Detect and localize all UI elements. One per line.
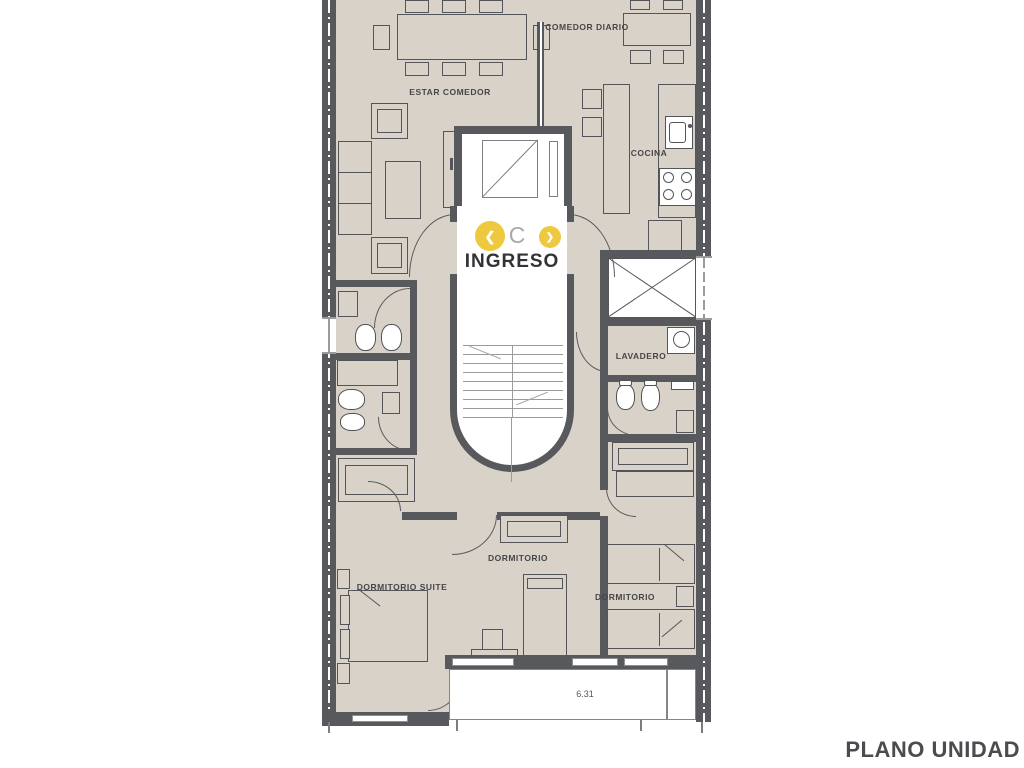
interior-wall-gap [540,22,542,128]
tv-cabinet-handle [450,158,453,170]
bidet [616,384,635,410]
shaft-break-edge [696,318,712,320]
bath-wall-right [410,280,417,455]
bath-counter [337,360,398,386]
coffee-table [385,161,421,219]
breakfast-chair [630,0,650,10]
bed-pillow-line [659,548,660,581]
bed-pillow-line [659,613,660,646]
axis-tick [701,722,703,733]
bidet-tank [619,380,632,386]
toilet-tank [644,380,657,386]
armchair-seat [377,243,402,268]
wall-axis-left [328,0,330,722]
stove-burner [663,172,674,183]
room-label-cocina: COCINA [584,148,714,160]
window-slit [624,658,668,666]
wardrobe-door [618,448,688,465]
stair-divider [512,345,513,418]
window-frame [328,317,330,353]
bedroom-wall [600,442,608,490]
carousel-prev-button[interactable]: ❮ [475,221,505,251]
bed-pillow [340,595,350,625]
wardrobe [616,471,694,497]
room-label-dormitorio-suite: DORMITORIO SUITE [337,582,467,594]
shaft-wall-bottom [600,318,696,326]
entrance-label: INGRESO [457,251,567,273]
breakfast-chair [663,0,683,10]
single-bed [607,609,695,649]
breakfast-chair [663,50,684,64]
carousel-next-button[interactable]: ❯ [539,226,561,248]
toilet [641,383,660,411]
sofa-cushion-line [339,172,371,173]
axis-tick [456,720,458,731]
bed-pillow [340,629,350,659]
sofa-cushion-line [339,203,371,204]
plan-title: PLANO UNIDAD [820,737,1020,763]
wardrobe-door [507,521,561,537]
axis-tick [328,722,330,733]
washing-machine-drum [673,331,690,348]
dining-chair [479,62,503,76]
suite-wall-top [402,512,447,520]
sofa [338,141,372,235]
bath-cabinet [676,410,694,433]
bidet [340,413,365,431]
dining-chair [405,62,429,76]
dining-chair [442,62,466,76]
window-slit [352,715,408,722]
shaft-wall-top [600,250,696,258]
floor-plan-image: ESTAR COMEDOR COMEDOR DIARIO COCINA LAVA… [0,0,1024,768]
nightstand [337,663,350,684]
bath-wall-bottom [600,434,696,442]
room-label-estar-comedor: ESTAR COMEDOR [385,87,515,99]
stove-burner [681,189,692,200]
carousel-center-glyph: C [505,222,529,249]
bath-vanity [338,291,358,317]
desk-chair [482,629,503,650]
dining-chair [373,25,390,50]
window-slit [572,658,618,666]
balcony-divider [666,669,668,720]
bath-wall-top [336,280,417,287]
dining-table [397,14,527,60]
sink-faucet [688,124,692,128]
toilet [355,324,376,351]
elevator-counterweight [549,141,558,197]
sink-basin [669,122,686,143]
dining-chair [479,0,503,13]
kitchen-stool [582,89,602,109]
room-label-dormitorio-right: DORMITORIO [560,592,690,604]
chevron-left-icon: ❮ [485,229,496,244]
kitchen-cabinet [648,220,682,252]
double-bed [348,590,428,662]
stove-burner [663,189,674,200]
kitchen-stool [582,117,602,137]
armchair-seat [377,109,402,133]
single-bed [607,544,695,584]
stove-burner [681,172,692,183]
room-label-dormitorio-center: DORMITORIO [453,553,583,565]
toilet [338,389,365,410]
stair-stem [511,418,512,482]
axis-tick [640,720,642,731]
chevron-right-icon: ❯ [546,232,554,243]
bath-cabinet [382,392,400,414]
window-slit [452,658,514,666]
bed-pillow [527,578,563,589]
bidet [381,324,402,351]
dining-chair [442,0,466,13]
balcony-dimension: 6.31 [555,689,615,699]
dining-chair [405,0,429,13]
bath-wall-mid [336,353,417,360]
bath-shelf [671,381,694,390]
shaft-break-axis [703,258,705,318]
breakfast-chair [630,50,651,64]
